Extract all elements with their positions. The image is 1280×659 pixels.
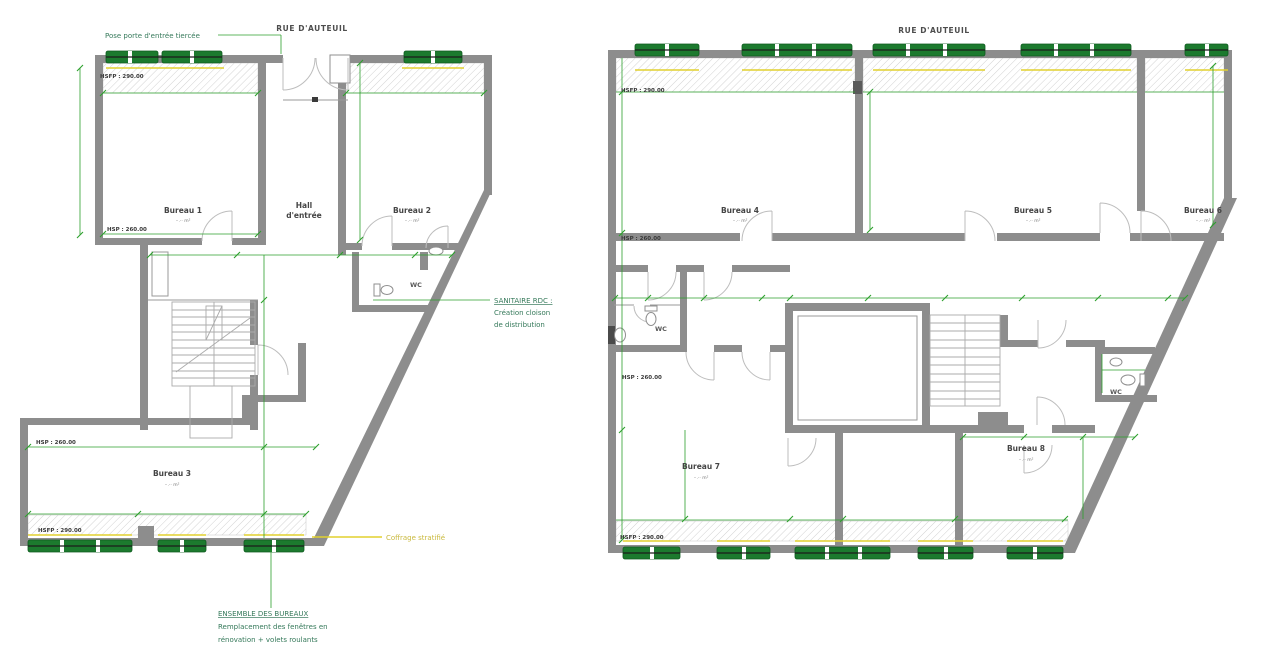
floor-plans-drawing: RUE D'AUTEUIL HSFP : 290.00 HSP : 260.00… — [0, 0, 1280, 659]
left-plan: RUE D'AUTEUIL HSFP : 290.00 HSP : 260.00… — [20, 24, 553, 644]
room-label-bureau5: Bureau 5 — [1014, 206, 1052, 215]
street-label-right: RUE D'AUTEUIL — [898, 26, 969, 35]
annotation-sanitaire-line1: SANITAIRE RDC : — [494, 297, 553, 305]
annotation-sanitaire-line2: Création cloison — [494, 309, 550, 317]
annotation-sanitaire-line3: de distribution — [494, 321, 545, 329]
room-label-wc-right-plan-right: WC — [1110, 388, 1122, 396]
floor-plan-page: RUE D'AUTEUIL HSFP : 290.00 HSP : 260.00… — [0, 0, 1280, 659]
room-label-bureau2: Bureau 2 — [393, 206, 431, 215]
room-label-bureau8: Bureau 8 — [1007, 444, 1045, 453]
area-label-bureau5: ··.·· m² — [1026, 219, 1041, 224]
right-plan-labels: RUE D'AUTEUIL HSFP : 290.00 HSP : 260.00… — [620, 26, 1222, 541]
hsfp-label-left-bottom: HSFP : 290.00 — [38, 528, 82, 534]
room-label-bureau4: Bureau 4 — [721, 206, 759, 215]
hsp-label-right-mid: HSP : 260.00 — [622, 375, 662, 381]
area-label-bureau2: ··.·· m² — [405, 219, 420, 224]
room-label-wc-left-plan: WC — [410, 281, 422, 289]
room-label-bureau6: Bureau 6 — [1184, 206, 1222, 215]
hsp-label-bureau1: HSP : 260.00 — [107, 227, 147, 233]
area-label-bureau6: ··.·· m² — [1196, 219, 1211, 224]
area-label-bureau1: ··.·· m² — [176, 219, 191, 224]
room-label-bureau3: Bureau 3 — [153, 469, 191, 478]
left-plan-doors — [202, 58, 448, 375]
room-label-hall-line1: Hall — [296, 201, 312, 210]
right-plan-stairs — [930, 315, 1000, 406]
left-plan-fixtures — [374, 247, 443, 296]
room-label-bureau1: Bureau 1 — [164, 206, 202, 215]
annotation-entry-door: Pose porte d'entrée tiercée — [105, 32, 200, 40]
room-label-hall-line2: d'entrée — [286, 211, 322, 220]
annotation-ensemble-line1: ENSEMBLE DES BUREAUX — [218, 610, 309, 618]
annotation-ensemble-line3: rénovation + volets roulants — [218, 636, 318, 644]
hsfp-label-right-top: HSFP : 290.00 — [621, 88, 665, 94]
area-label-bureau3: ··.·· m² — [165, 483, 180, 488]
area-label-bureau8: ··.·· m² — [1019, 458, 1034, 463]
room-label-wc-right-plan-left: WC — [655, 325, 667, 333]
hsp-label-right-top: HSP : 260.00 — [621, 236, 661, 242]
right-plan: RUE D'AUTEUIL HSFP : 290.00 HSP : 260.00… — [608, 26, 1237, 559]
annotation-ensemble-line2: Remplacement des fenêtres en — [218, 623, 328, 631]
area-label-bureau4: ··.·· m² — [733, 219, 748, 224]
annotation-coffrage: Coffrage stratifié — [386, 534, 445, 542]
hsfp-label-right-bottom: HSFP : 290.00 — [620, 535, 664, 541]
area-label-bureau7: ··.·· m² — [694, 476, 709, 481]
hsfp-label-left-top: HSFP : 290.00 — [100, 74, 144, 80]
left-plan-windows — [28, 51, 464, 552]
street-label-left: RUE D'AUTEUIL — [276, 24, 347, 33]
hsp-label-bureau3: HSP : 260.00 — [36, 440, 76, 446]
room-label-bureau7: Bureau 7 — [682, 462, 720, 471]
